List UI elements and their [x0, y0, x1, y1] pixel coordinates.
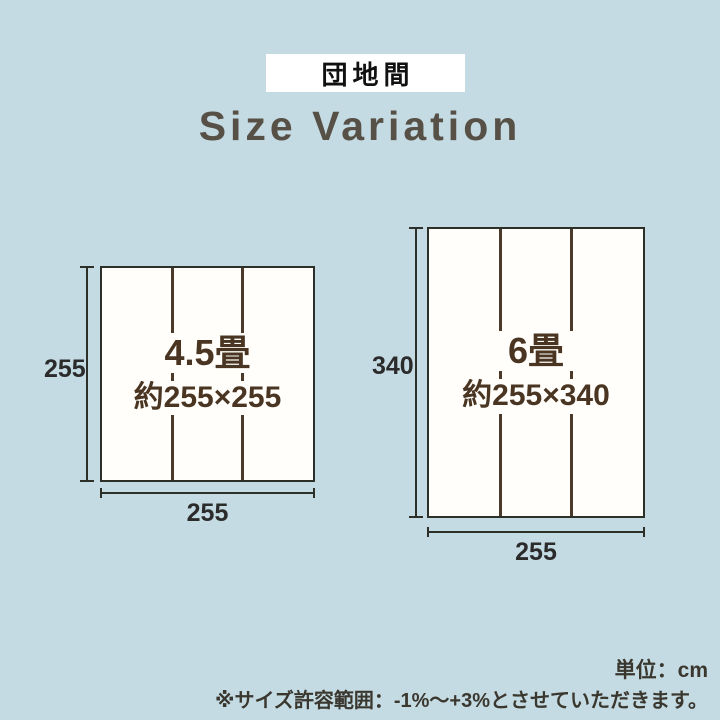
category-badge: 団地間 [266, 54, 465, 92]
tatami-divider-line [570, 229, 573, 516]
category-badge-label: 団地間 [316, 55, 414, 92]
tolerance-note: ※サイズ許容範囲：-1%〜+3%とさせていただきます。 [215, 684, 708, 713]
size-name-label: 6畳 [498, 331, 574, 371]
size-dimensions-label: 約255×340 [454, 379, 618, 414]
height-dimension-label: 255 [44, 356, 84, 382]
height-dimension-label: 340 [372, 353, 413, 379]
unit-note: 単位：cm [615, 654, 708, 684]
page-title: Size Variation [0, 103, 720, 150]
width-dimension-line [427, 527, 645, 537]
tatami-panel-4-5: 4.5畳 約255×255 [100, 266, 315, 482]
width-dimension-label: 255 [100, 500, 315, 526]
tatami-divider-line [499, 229, 502, 516]
size-name-label: 4.5畳 [154, 333, 260, 373]
width-dimension-line [100, 488, 315, 498]
diagram-4-5-tatami: 255 4.5畳 約255×255 255 [44, 266, 315, 526]
height-dimension-line [409, 227, 423, 518]
width-dimension-label: 255 [427, 539, 645, 565]
size-variation-infographic: 団地間 Size Variation 255 4.5畳 約255×255 255… [0, 0, 720, 720]
height-dimension-line [80, 266, 94, 482]
diagram-6-tatami: 340 6畳 約255×340 255 [372, 227, 645, 560]
tatami-divider-line [241, 268, 244, 480]
size-dimensions-label: 約255×255 [126, 381, 290, 416]
tatami-divider-line [171, 268, 174, 480]
tatami-panel-6: 6畳 約255×340 [427, 227, 645, 518]
